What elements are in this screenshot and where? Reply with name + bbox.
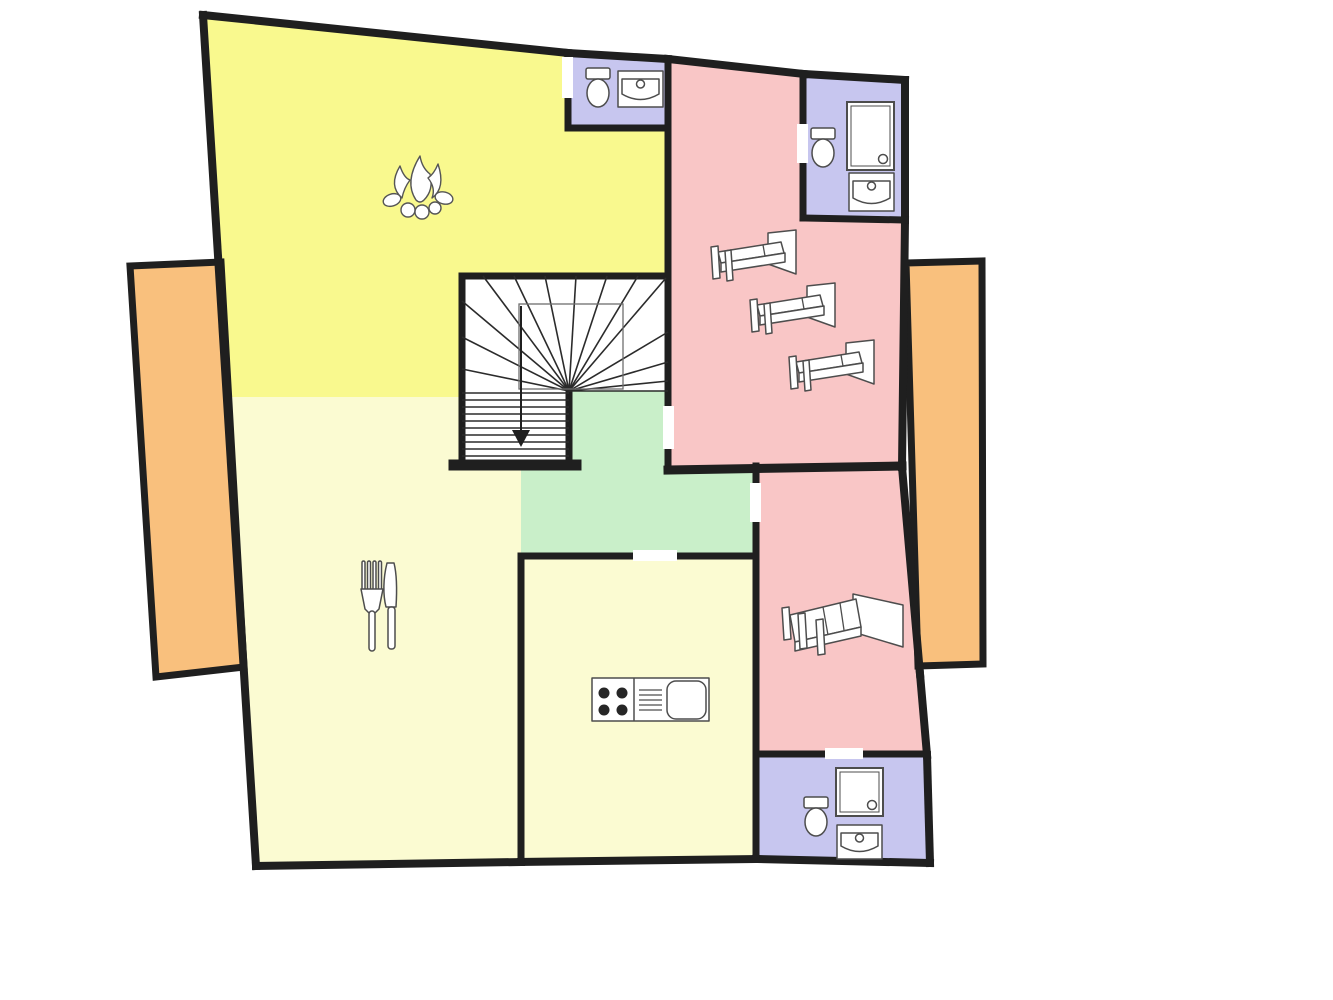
shower-drain xyxy=(879,155,888,164)
toilet-tank xyxy=(586,68,610,79)
door-opening xyxy=(663,406,674,449)
wall-segment xyxy=(927,755,930,863)
toilet-bathroom-right xyxy=(811,128,835,167)
door-opening xyxy=(562,57,573,98)
bed-leg xyxy=(764,303,772,334)
wall-segment xyxy=(902,220,905,467)
toilet-bathroom-top xyxy=(586,68,610,107)
stove-burner xyxy=(599,705,610,716)
door-opening xyxy=(797,124,808,163)
kitchen-stove-sink-unit xyxy=(592,678,709,721)
shower-tray xyxy=(836,768,883,816)
knife-handle xyxy=(388,607,395,649)
door-opening xyxy=(633,550,677,561)
bed-leg xyxy=(803,360,811,391)
bed-footboard xyxy=(789,356,798,389)
toilet-bowl xyxy=(812,139,834,167)
toilet-tank xyxy=(804,797,828,808)
toilet-tank xyxy=(811,128,835,139)
wall-segment xyxy=(256,862,521,866)
fork-tine xyxy=(379,561,382,591)
log xyxy=(401,203,415,217)
sink-faucet-hole xyxy=(868,182,876,190)
stove-burner xyxy=(617,688,628,699)
shower-bathroom-bottom xyxy=(836,768,883,816)
log xyxy=(429,202,441,214)
bed-footboard xyxy=(798,613,807,649)
shower-drain xyxy=(868,801,877,810)
fork-handle xyxy=(369,611,375,651)
sink-bathroom-top xyxy=(618,71,663,107)
toilet-bowl xyxy=(587,79,609,107)
bed-leg xyxy=(725,250,733,281)
log xyxy=(415,205,429,219)
bed-footboard xyxy=(782,607,791,640)
fork-tine xyxy=(362,561,365,591)
wall-segment xyxy=(521,859,756,862)
sink-faucet-hole xyxy=(637,80,645,88)
bed-footboard xyxy=(750,299,759,332)
fork-tine xyxy=(368,561,371,591)
kitchen-sink-bowl xyxy=(667,681,706,719)
floor-plan-drawing xyxy=(0,0,1333,1000)
wall-segment xyxy=(803,218,905,220)
shower-bathroom-right xyxy=(847,102,894,170)
stove-burner xyxy=(617,705,628,716)
bed-footboard xyxy=(711,246,720,279)
door-opening xyxy=(825,748,863,759)
stove-burner xyxy=(599,688,610,699)
sink-faucet-hole xyxy=(856,834,864,842)
knife-blade xyxy=(384,563,397,607)
toilet-bathroom-bottom xyxy=(804,797,828,836)
bed-leg xyxy=(816,619,825,655)
toilet-bowl xyxy=(805,808,827,836)
sink-bathroom-bottom xyxy=(837,825,882,859)
wall-segment xyxy=(668,466,902,470)
fork-tine xyxy=(373,561,376,591)
floor-plan-page xyxy=(0,0,1333,1000)
door-opening xyxy=(750,483,761,522)
sink-bathroom-right xyxy=(849,173,894,211)
